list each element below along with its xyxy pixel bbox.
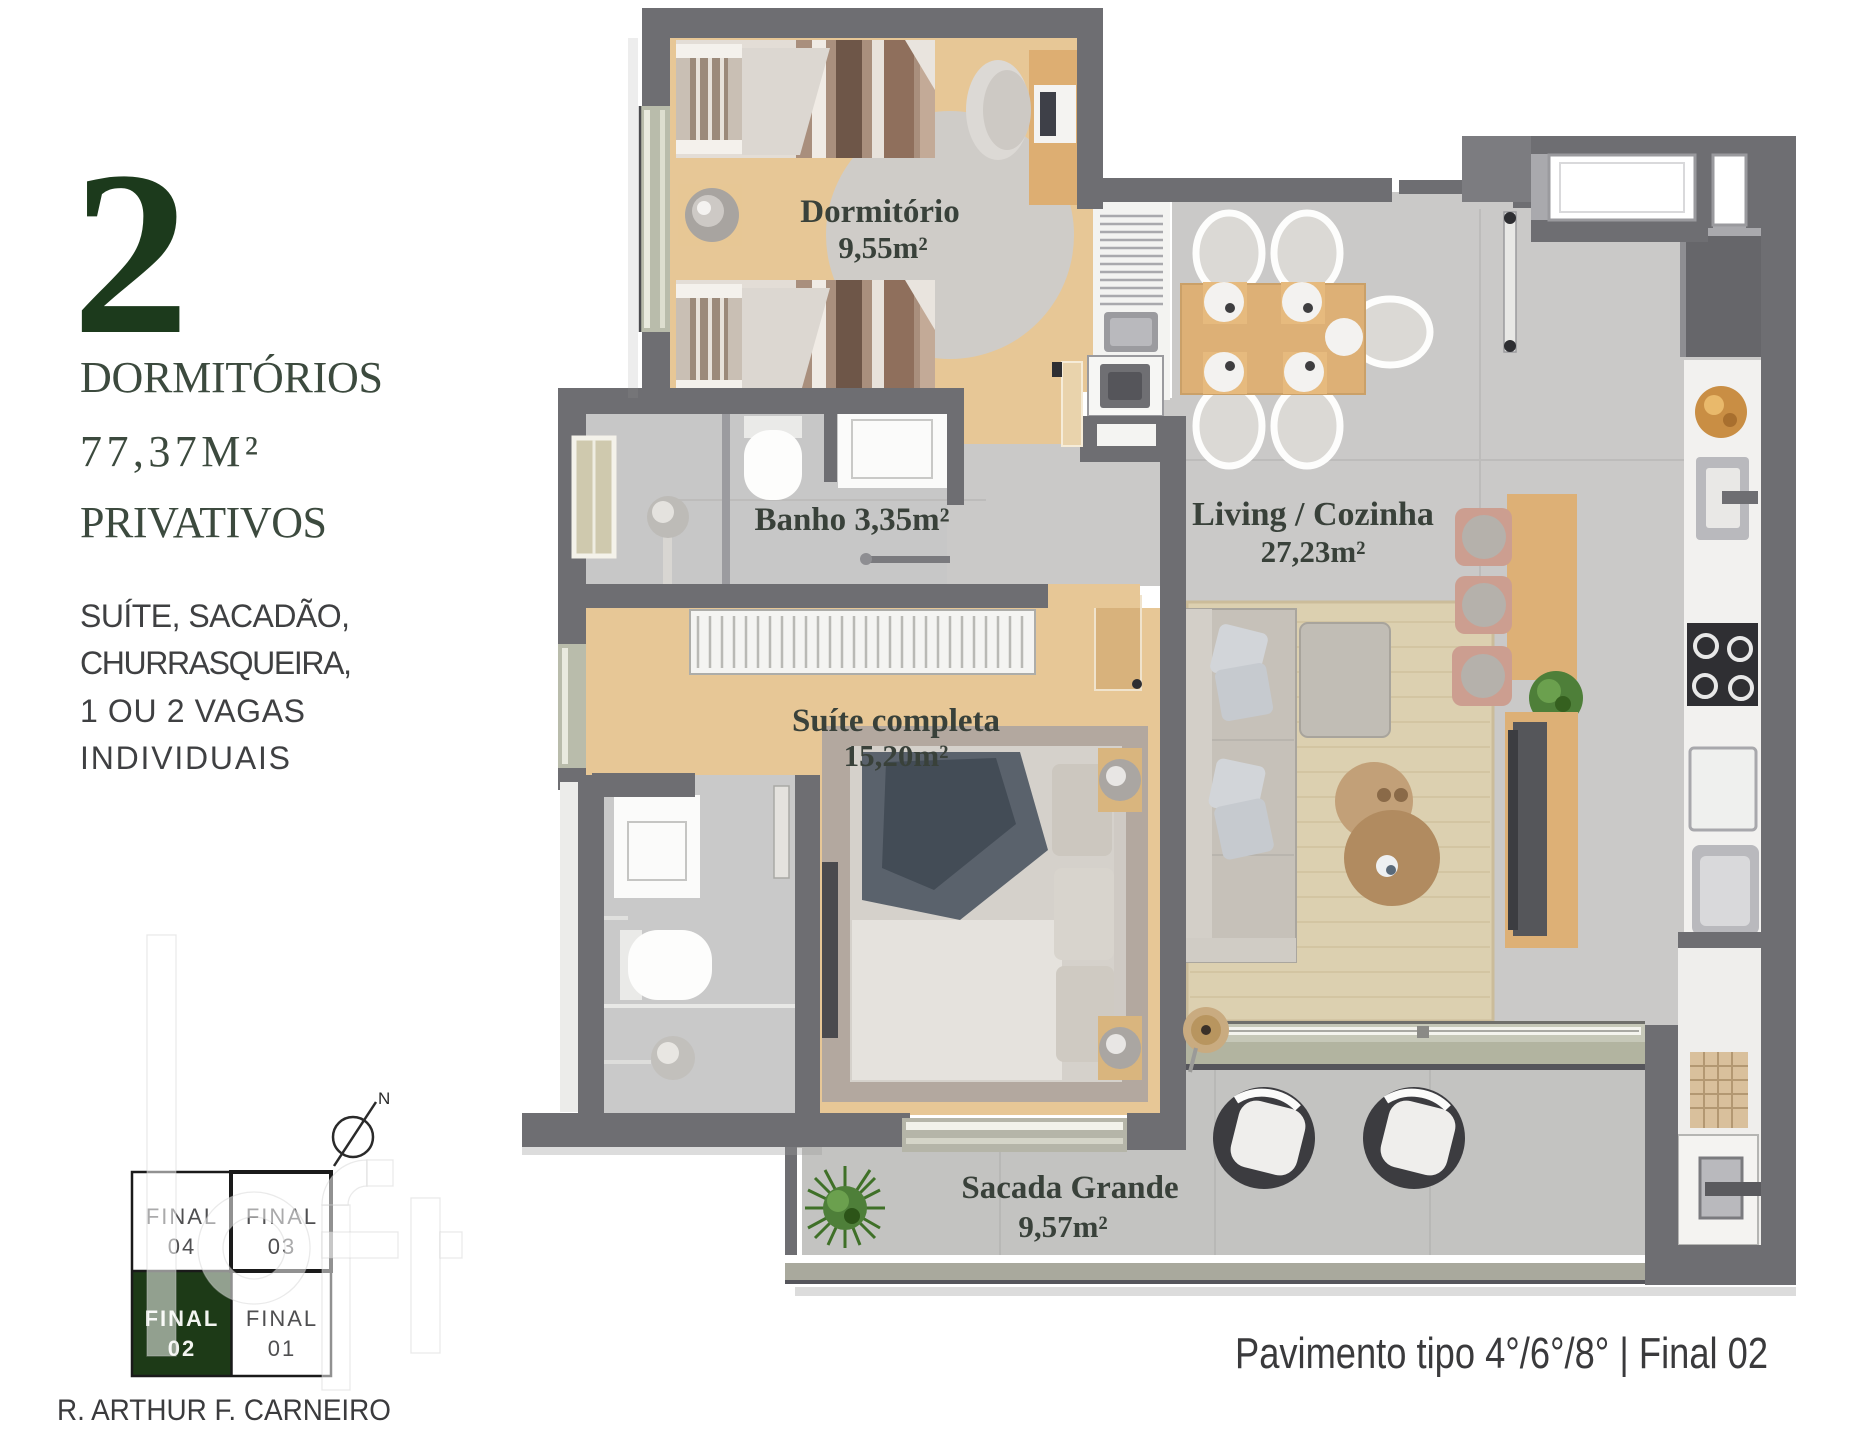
svg-text:Sacada Grande: Sacada Grande xyxy=(961,1170,1178,1206)
svg-text:77,37M²: 77,37M² xyxy=(80,427,258,476)
svg-text:27,23m²: 27,23m² xyxy=(1261,534,1366,569)
svg-text:Dormitório: Dormitório xyxy=(800,194,959,230)
svg-text:N: N xyxy=(378,1089,390,1108)
svg-text:2: 2 xyxy=(72,123,190,383)
svg-text:DORMITÓRIOS: DORMITÓRIOS xyxy=(80,353,383,402)
svg-text:9,57m²: 9,57m² xyxy=(1018,1209,1107,1244)
svg-text:FINAL: FINAL xyxy=(246,1306,318,1331)
svg-text:15,20m²: 15,20m² xyxy=(844,738,949,773)
svg-text:Pavimento tipo 4°/6°/8° | Fina: Pavimento tipo 4°/6°/8° | Final 02 xyxy=(1235,1329,1768,1378)
svg-text:1 OU 2 VAGAS: 1 OU 2 VAGAS xyxy=(80,693,305,729)
svg-text:INDIVIDUAIS: INDIVIDUAIS xyxy=(80,740,290,776)
svg-text:9,55m²: 9,55m² xyxy=(838,230,927,265)
svg-text:SUÍTE, SACADÃO,: SUÍTE, SACADÃO, xyxy=(80,598,350,634)
svg-text:R. ARTHUR F. CARNEIRO: R. ARTHUR F. CARNEIRO xyxy=(57,1394,391,1427)
svg-text:01: 01 xyxy=(268,1336,296,1361)
svg-text:Banho 3,35m²: Banho 3,35m² xyxy=(754,502,949,538)
svg-text:PRIVATIVOS: PRIVATIVOS xyxy=(80,498,327,547)
svg-text:CHURRASQUEIRA,: CHURRASQUEIRA, xyxy=(80,645,352,681)
svg-text:Living / Cozinha: Living / Cozinha xyxy=(1192,496,1434,533)
svg-text:Suíte completa: Suíte completa xyxy=(792,703,1000,739)
